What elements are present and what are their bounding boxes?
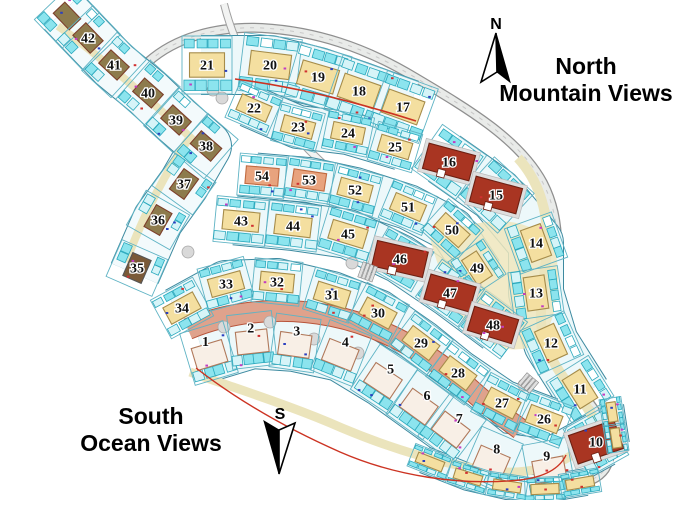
svg-text:36: 36 (151, 214, 165, 229)
svg-text:45: 45 (341, 228, 355, 243)
svg-text:5: 5 (387, 363, 394, 378)
svg-text:16: 16 (442, 156, 456, 171)
svg-text:27: 27 (495, 397, 509, 412)
svg-text:20: 20 (263, 59, 277, 74)
svg-text:53: 53 (302, 174, 316, 189)
svg-text:49: 49 (470, 262, 484, 277)
svg-text:47: 47 (443, 287, 457, 302)
svg-text:6: 6 (424, 389, 431, 404)
svg-text:50: 50 (445, 224, 459, 239)
svg-text:25: 25 (388, 141, 402, 156)
svg-text:52: 52 (348, 184, 362, 199)
svg-text:11: 11 (573, 383, 586, 398)
svg-text:43: 43 (234, 215, 248, 230)
svg-text:3: 3 (293, 325, 300, 340)
svg-text:Ocean Views: Ocean Views (80, 430, 222, 456)
svg-text:48: 48 (486, 319, 500, 334)
svg-text:24: 24 (341, 127, 355, 142)
svg-text:8: 8 (493, 443, 500, 458)
svg-text:22: 22 (247, 102, 261, 117)
svg-text:42: 42 (81, 32, 95, 47)
svg-text:Mountain Views: Mountain Views (499, 80, 672, 106)
svg-text:South: South (118, 403, 183, 429)
svg-text:46: 46 (393, 253, 407, 268)
svg-text:10: 10 (589, 436, 603, 451)
svg-text:29: 29 (414, 337, 428, 352)
svg-text:13: 13 (529, 287, 543, 302)
svg-text:38: 38 (199, 140, 213, 155)
svg-text:35: 35 (130, 262, 144, 277)
svg-text:1: 1 (202, 335, 209, 350)
svg-text:17: 17 (396, 101, 410, 116)
svg-text:S: S (275, 406, 286, 423)
svg-text:41: 41 (107, 59, 121, 74)
svg-text:28: 28 (451, 367, 465, 382)
svg-text:54: 54 (255, 170, 269, 185)
svg-text:33: 33 (219, 278, 233, 293)
svg-text:18: 18 (352, 85, 366, 100)
svg-text:34: 34 (175, 302, 189, 317)
svg-text:44: 44 (286, 220, 300, 235)
svg-text:North: North (555, 53, 616, 79)
svg-text:32: 32 (270, 276, 284, 291)
svg-text:12: 12 (544, 337, 558, 352)
svg-text:N: N (490, 16, 502, 33)
svg-text:14: 14 (529, 237, 543, 252)
svg-text:26: 26 (537, 413, 551, 428)
svg-text:19: 19 (311, 71, 325, 86)
svg-text:40: 40 (141, 87, 155, 102)
svg-text:51: 51 (401, 201, 415, 216)
svg-text:21: 21 (200, 59, 214, 74)
svg-text:30: 30 (371, 307, 385, 322)
svg-text:37: 37 (177, 178, 191, 193)
svg-text:15: 15 (489, 189, 503, 204)
svg-text:9: 9 (543, 450, 550, 465)
svg-text:31: 31 (325, 289, 339, 304)
svg-text:39: 39 (169, 114, 183, 129)
svg-text:7: 7 (456, 412, 463, 427)
svg-text:23: 23 (291, 121, 305, 136)
svg-text:2: 2 (247, 322, 254, 337)
svg-text:4: 4 (342, 335, 349, 350)
